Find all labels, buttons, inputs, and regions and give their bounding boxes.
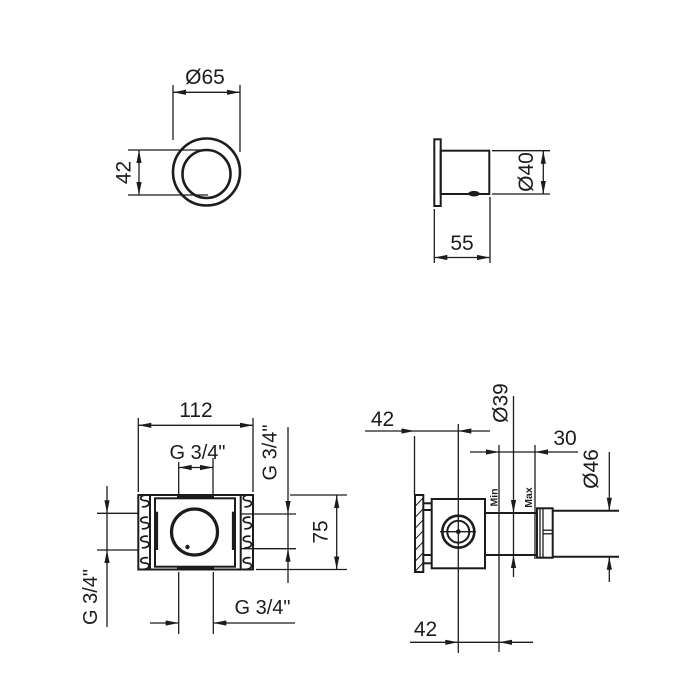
- curl-icon: [141, 536, 149, 548]
- arrowhead: [136, 182, 141, 195]
- arrowhead: [535, 449, 548, 454]
- arrowhead: [227, 90, 240, 95]
- technical-drawing-canvas: Ø65 42 Ø40 55: [0, 0, 700, 700]
- dim-label-adjustment-30: 30: [553, 427, 576, 450]
- view-valve-side: Min Max 42 Ø39 30 Ø46: [365, 383, 619, 653]
- min-label: Min: [489, 488, 501, 506]
- arrowhead: [499, 640, 512, 645]
- dim-left-port: G 3/4": [80, 486, 138, 627]
- arrowhead: [213, 620, 226, 625]
- curl-icon: [141, 495, 149, 507]
- dim-handle-diameter-46: Ø46: [580, 449, 612, 582]
- dim-sleeve-diameter-39: Ø39: [490, 383, 517, 577]
- dim-label-height-75: 75: [310, 520, 333, 543]
- curl-icon: [243, 558, 251, 570]
- arrowhead: [434, 255, 447, 260]
- extension-sleeve: [485, 513, 537, 555]
- dim-label-diameter-65: Ø65: [185, 66, 225, 89]
- curl-icon: [243, 495, 251, 507]
- arrowhead: [511, 555, 516, 568]
- dim-height-75: 75: [256, 495, 347, 570]
- curl-icon: [141, 517, 149, 529]
- view-escutcheon-front: Ø65 42: [113, 66, 241, 206]
- dim-label-inner-42: 42: [113, 161, 136, 184]
- arrowhead: [166, 620, 179, 625]
- arrowhead: [136, 150, 141, 163]
- arrowhead: [138, 423, 151, 428]
- dim-diameter-40: Ø40: [492, 151, 550, 194]
- dim-label-width-112: 112: [179, 399, 212, 422]
- escutcheon-body: [441, 151, 490, 194]
- dim-label-handle-diameter-46: Ø46: [580, 449, 603, 489]
- dim-inner-42: 42: [113, 150, 209, 195]
- escutcheon-inner-circle: [183, 150, 231, 198]
- arrowhead: [402, 428, 415, 433]
- dim-label-right-port: G 3/4": [260, 424, 282, 480]
- handle-assembly: [537, 508, 619, 557]
- arrowhead: [458, 428, 471, 433]
- curl-icon: [243, 517, 251, 529]
- arrowhead: [477, 255, 490, 260]
- view-box-front: 112 G 3/4" G 3/4" 75: [80, 399, 347, 634]
- max-label: Max: [523, 487, 535, 508]
- arrowhead: [334, 557, 339, 570]
- arrowhead: [445, 640, 458, 645]
- bottom-detail: [468, 191, 480, 197]
- arrowhead: [173, 90, 186, 95]
- arrowhead: [104, 550, 109, 563]
- dim-label-left-port: G 3/4": [80, 569, 102, 625]
- dim-label-top-port: G 3/4": [169, 442, 225, 464]
- dim-label-center-offset-42: 42: [414, 618, 437, 641]
- dim-label-sleeve-diameter-39: Ø39: [490, 383, 513, 423]
- view-escutcheon-side: Ø40 55: [434, 139, 550, 263]
- arrowhead: [541, 151, 546, 164]
- arrowhead: [200, 465, 213, 470]
- cartridge-dot: [185, 545, 189, 549]
- spindle-center-dot: [456, 529, 461, 534]
- arrowhead: [334, 495, 339, 508]
- dim-label-plate-offset-42: 42: [371, 408, 394, 431]
- arrowhead: [607, 498, 612, 511]
- dim-bottom-port: G 3/4": [150, 572, 295, 634]
- arrowhead: [541, 181, 546, 194]
- dim-plate-offset-42: 42: [365, 408, 490, 494]
- arrowhead: [179, 465, 192, 470]
- arrowhead: [486, 449, 499, 454]
- dim-right-port: G 3/4": [241, 424, 296, 583]
- dim-label-depth-55: 55: [450, 232, 473, 255]
- curl-icon: [243, 536, 251, 548]
- dim-depth-55: 55: [434, 197, 490, 263]
- dim-top-port: G 3/4": [169, 442, 225, 494]
- arrowhead: [285, 549, 290, 562]
- arrowhead: [285, 501, 290, 514]
- dim-label-diameter-40: Ø40: [515, 152, 538, 192]
- valve-body: [423, 499, 485, 568]
- arrowhead: [511, 500, 516, 513]
- cartridge-circle: [172, 509, 218, 555]
- curl-icon: [141, 558, 149, 570]
- dim-label-bottom-port: G 3/4": [234, 597, 290, 619]
- wall-plate-hatching: [415, 498, 423, 571]
- arrowhead: [607, 557, 612, 570]
- arrowhead: [104, 500, 109, 513]
- min-max-lines: Min Max: [489, 445, 536, 652]
- arrowhead: [240, 423, 253, 428]
- dim-center-offset-42: 42: [410, 618, 533, 645]
